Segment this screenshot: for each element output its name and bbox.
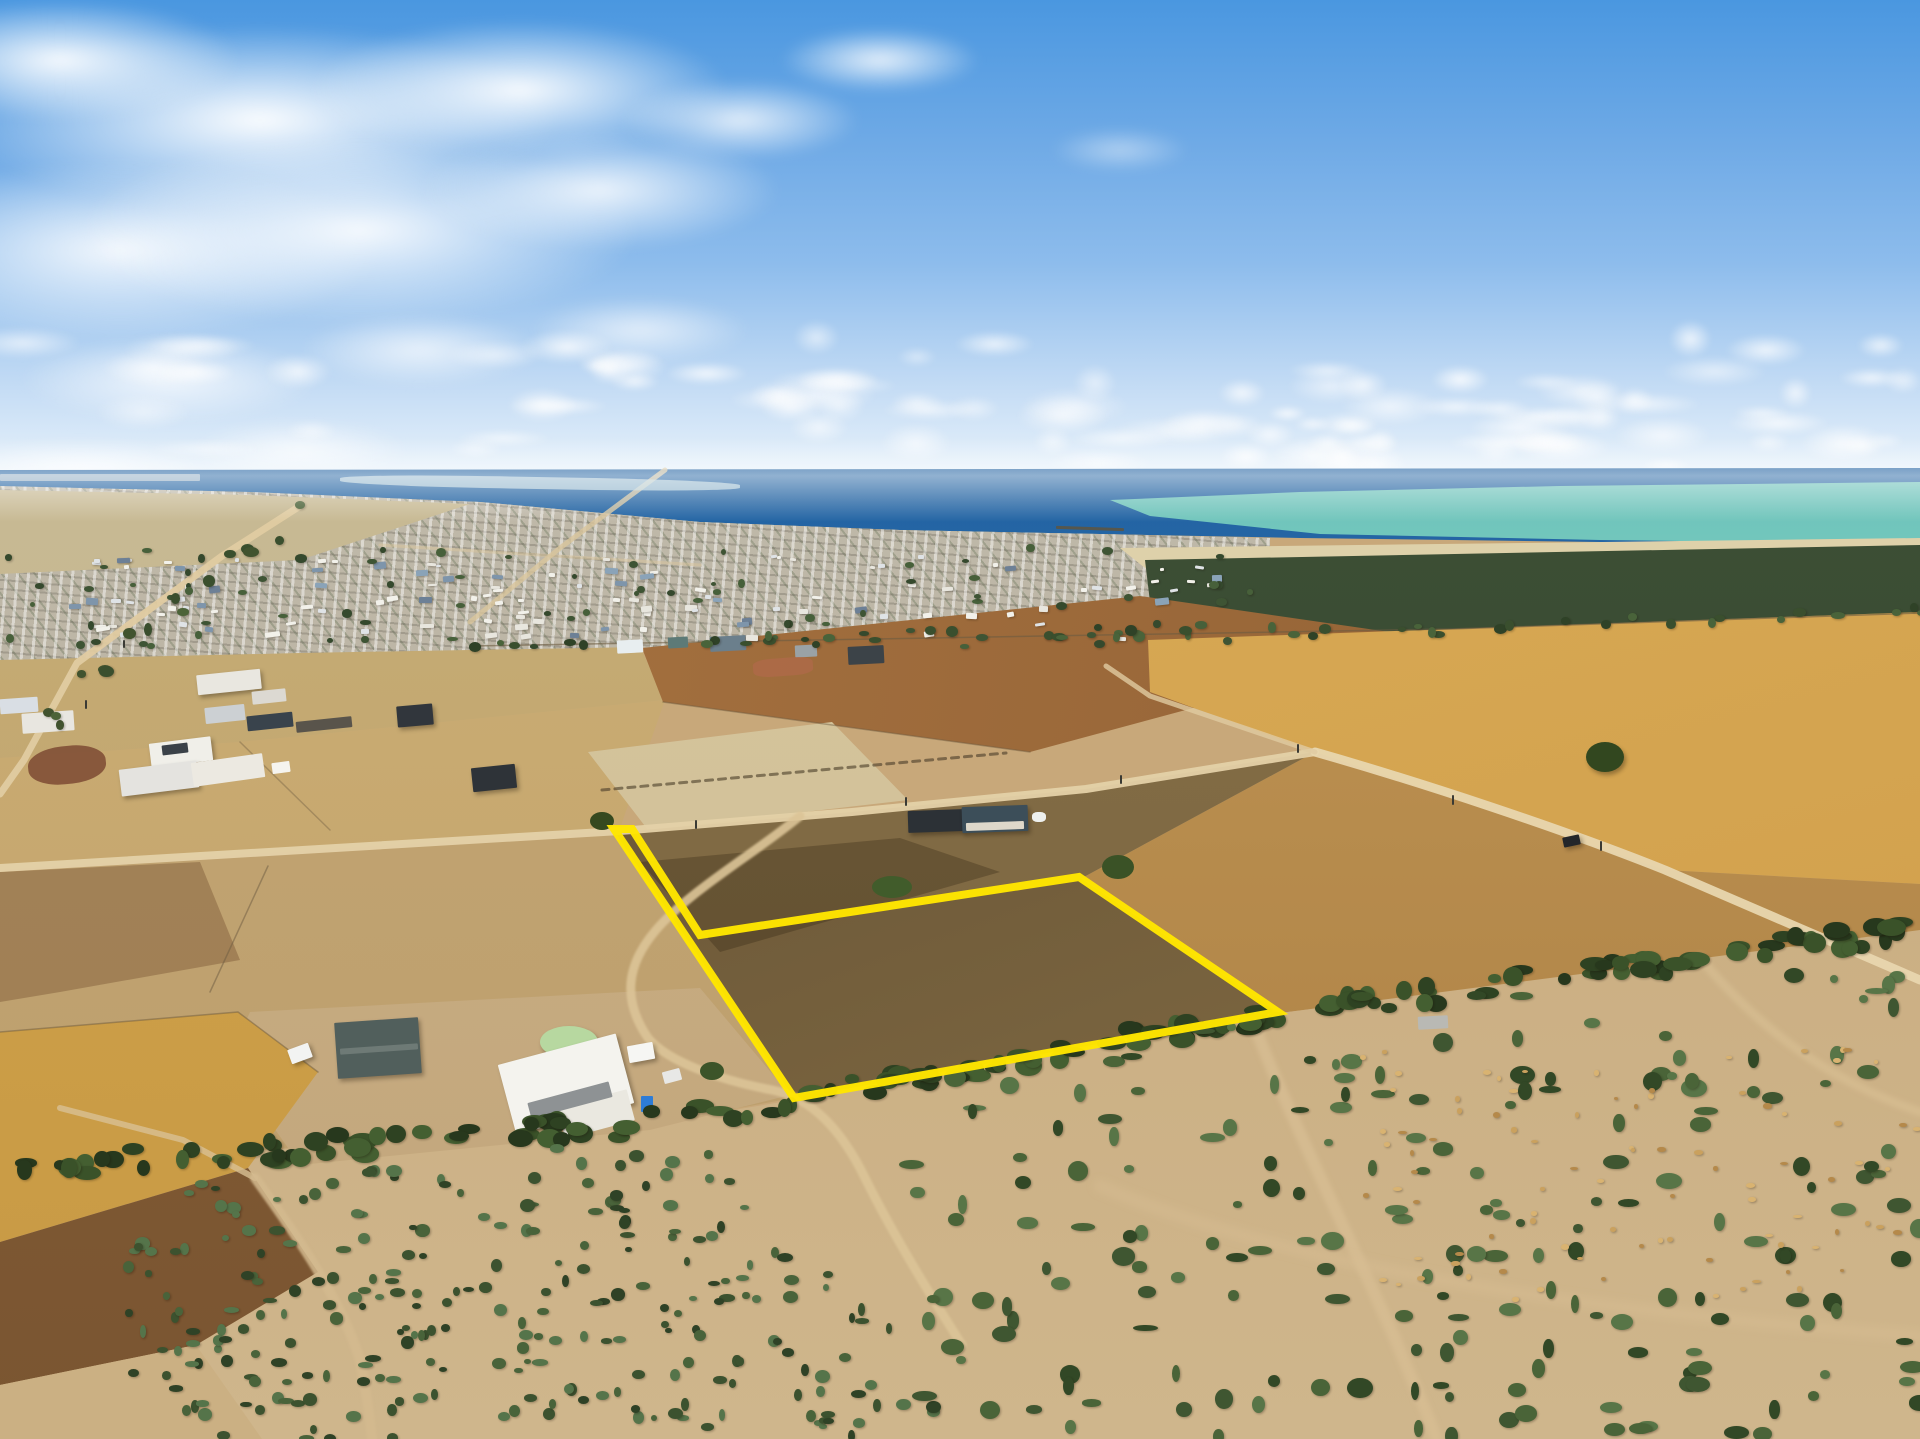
property-boundary-overlay	[0, 0, 1920, 1439]
aerial-photo	[0, 0, 1920, 1439]
property-for-sale-outline	[614, 829, 1278, 1098]
